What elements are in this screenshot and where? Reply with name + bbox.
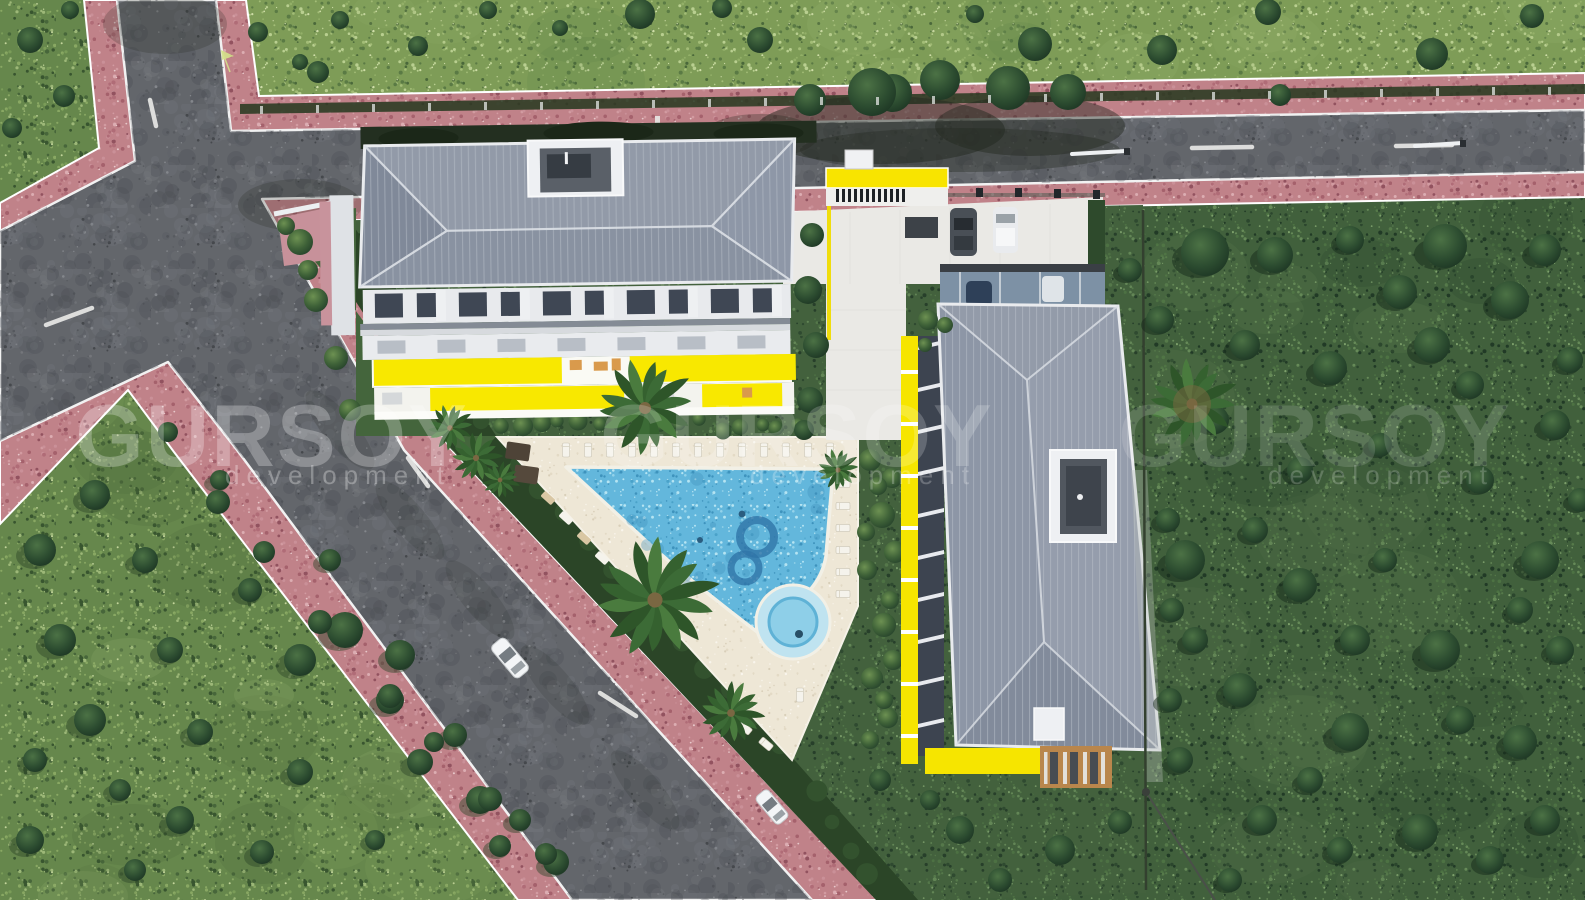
svg-text:development: development [225,460,451,490]
svg-text:development: development [1268,460,1494,490]
svg-text:development: development [750,460,976,490]
